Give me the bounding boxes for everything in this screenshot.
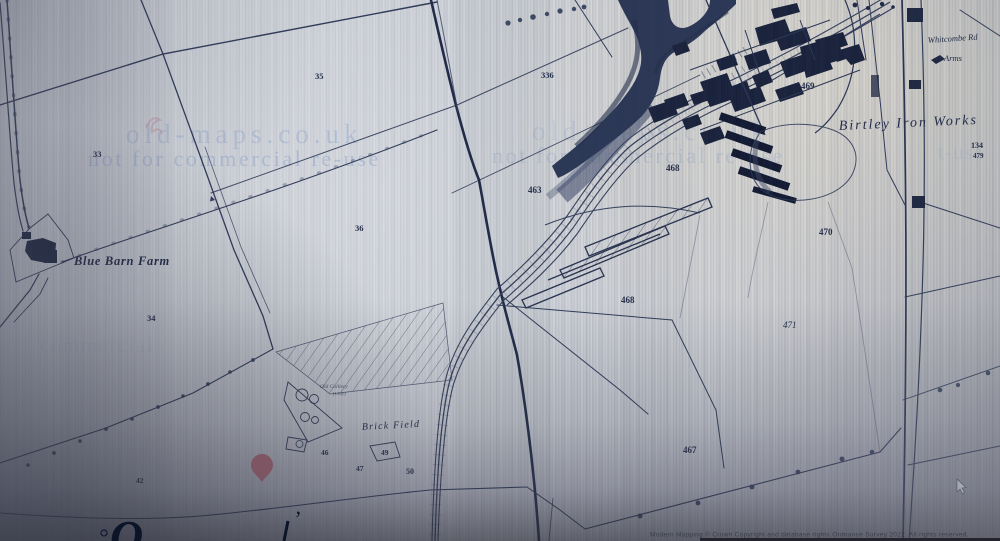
svg-text:Q: Q [110, 511, 143, 541]
svg-text:Modern Mapping © Crown Copyrig: Modern Mapping © Crown Copyright and dat… [650, 531, 969, 539]
svg-text:’: ’ [293, 506, 300, 531]
